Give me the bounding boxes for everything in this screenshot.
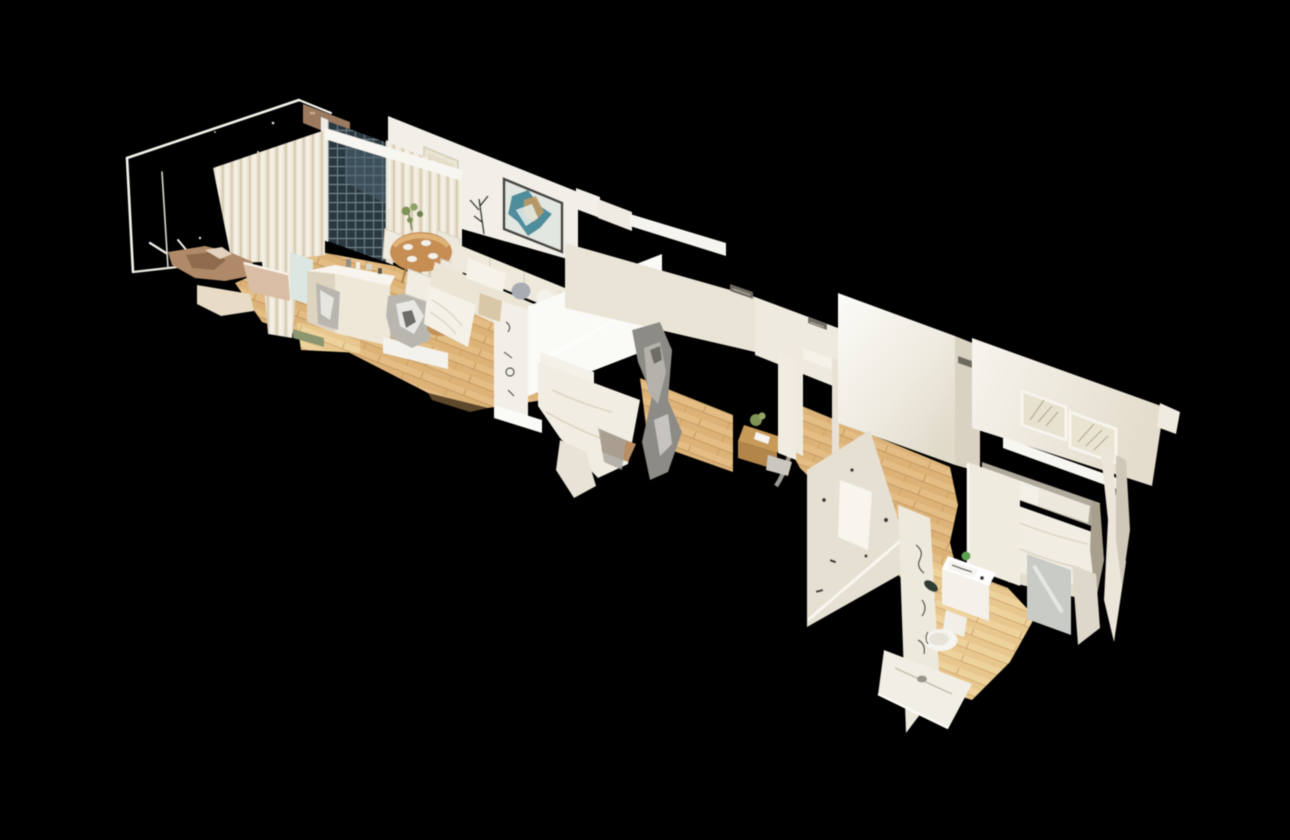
toilet-seat: [929, 633, 949, 646]
wall-step-1: [576, 188, 600, 218]
counter-rail-fragment: [150, 243, 166, 253]
panel-left-edge: [127, 158, 133, 272]
gray-round-pillow: [512, 283, 531, 300]
dollhouse-viewport[interactable]: [0, 0, 1290, 840]
door-jamb-left: [795, 345, 803, 456]
glass-panel-fragment: [1072, 565, 1100, 645]
wall-top-strip: [630, 214, 726, 256]
wall-step-2: [598, 199, 632, 231]
open-door-leaf: [778, 352, 796, 460]
floor-drain: [917, 676, 927, 683]
apartment-3d-model[interactable]: [0, 0, 1290, 840]
green-plant-item: [962, 552, 971, 561]
desk-plant-leaf: [758, 412, 765, 419]
door-jamb-right: [832, 358, 839, 465]
faucet-mark: [980, 576, 984, 580]
